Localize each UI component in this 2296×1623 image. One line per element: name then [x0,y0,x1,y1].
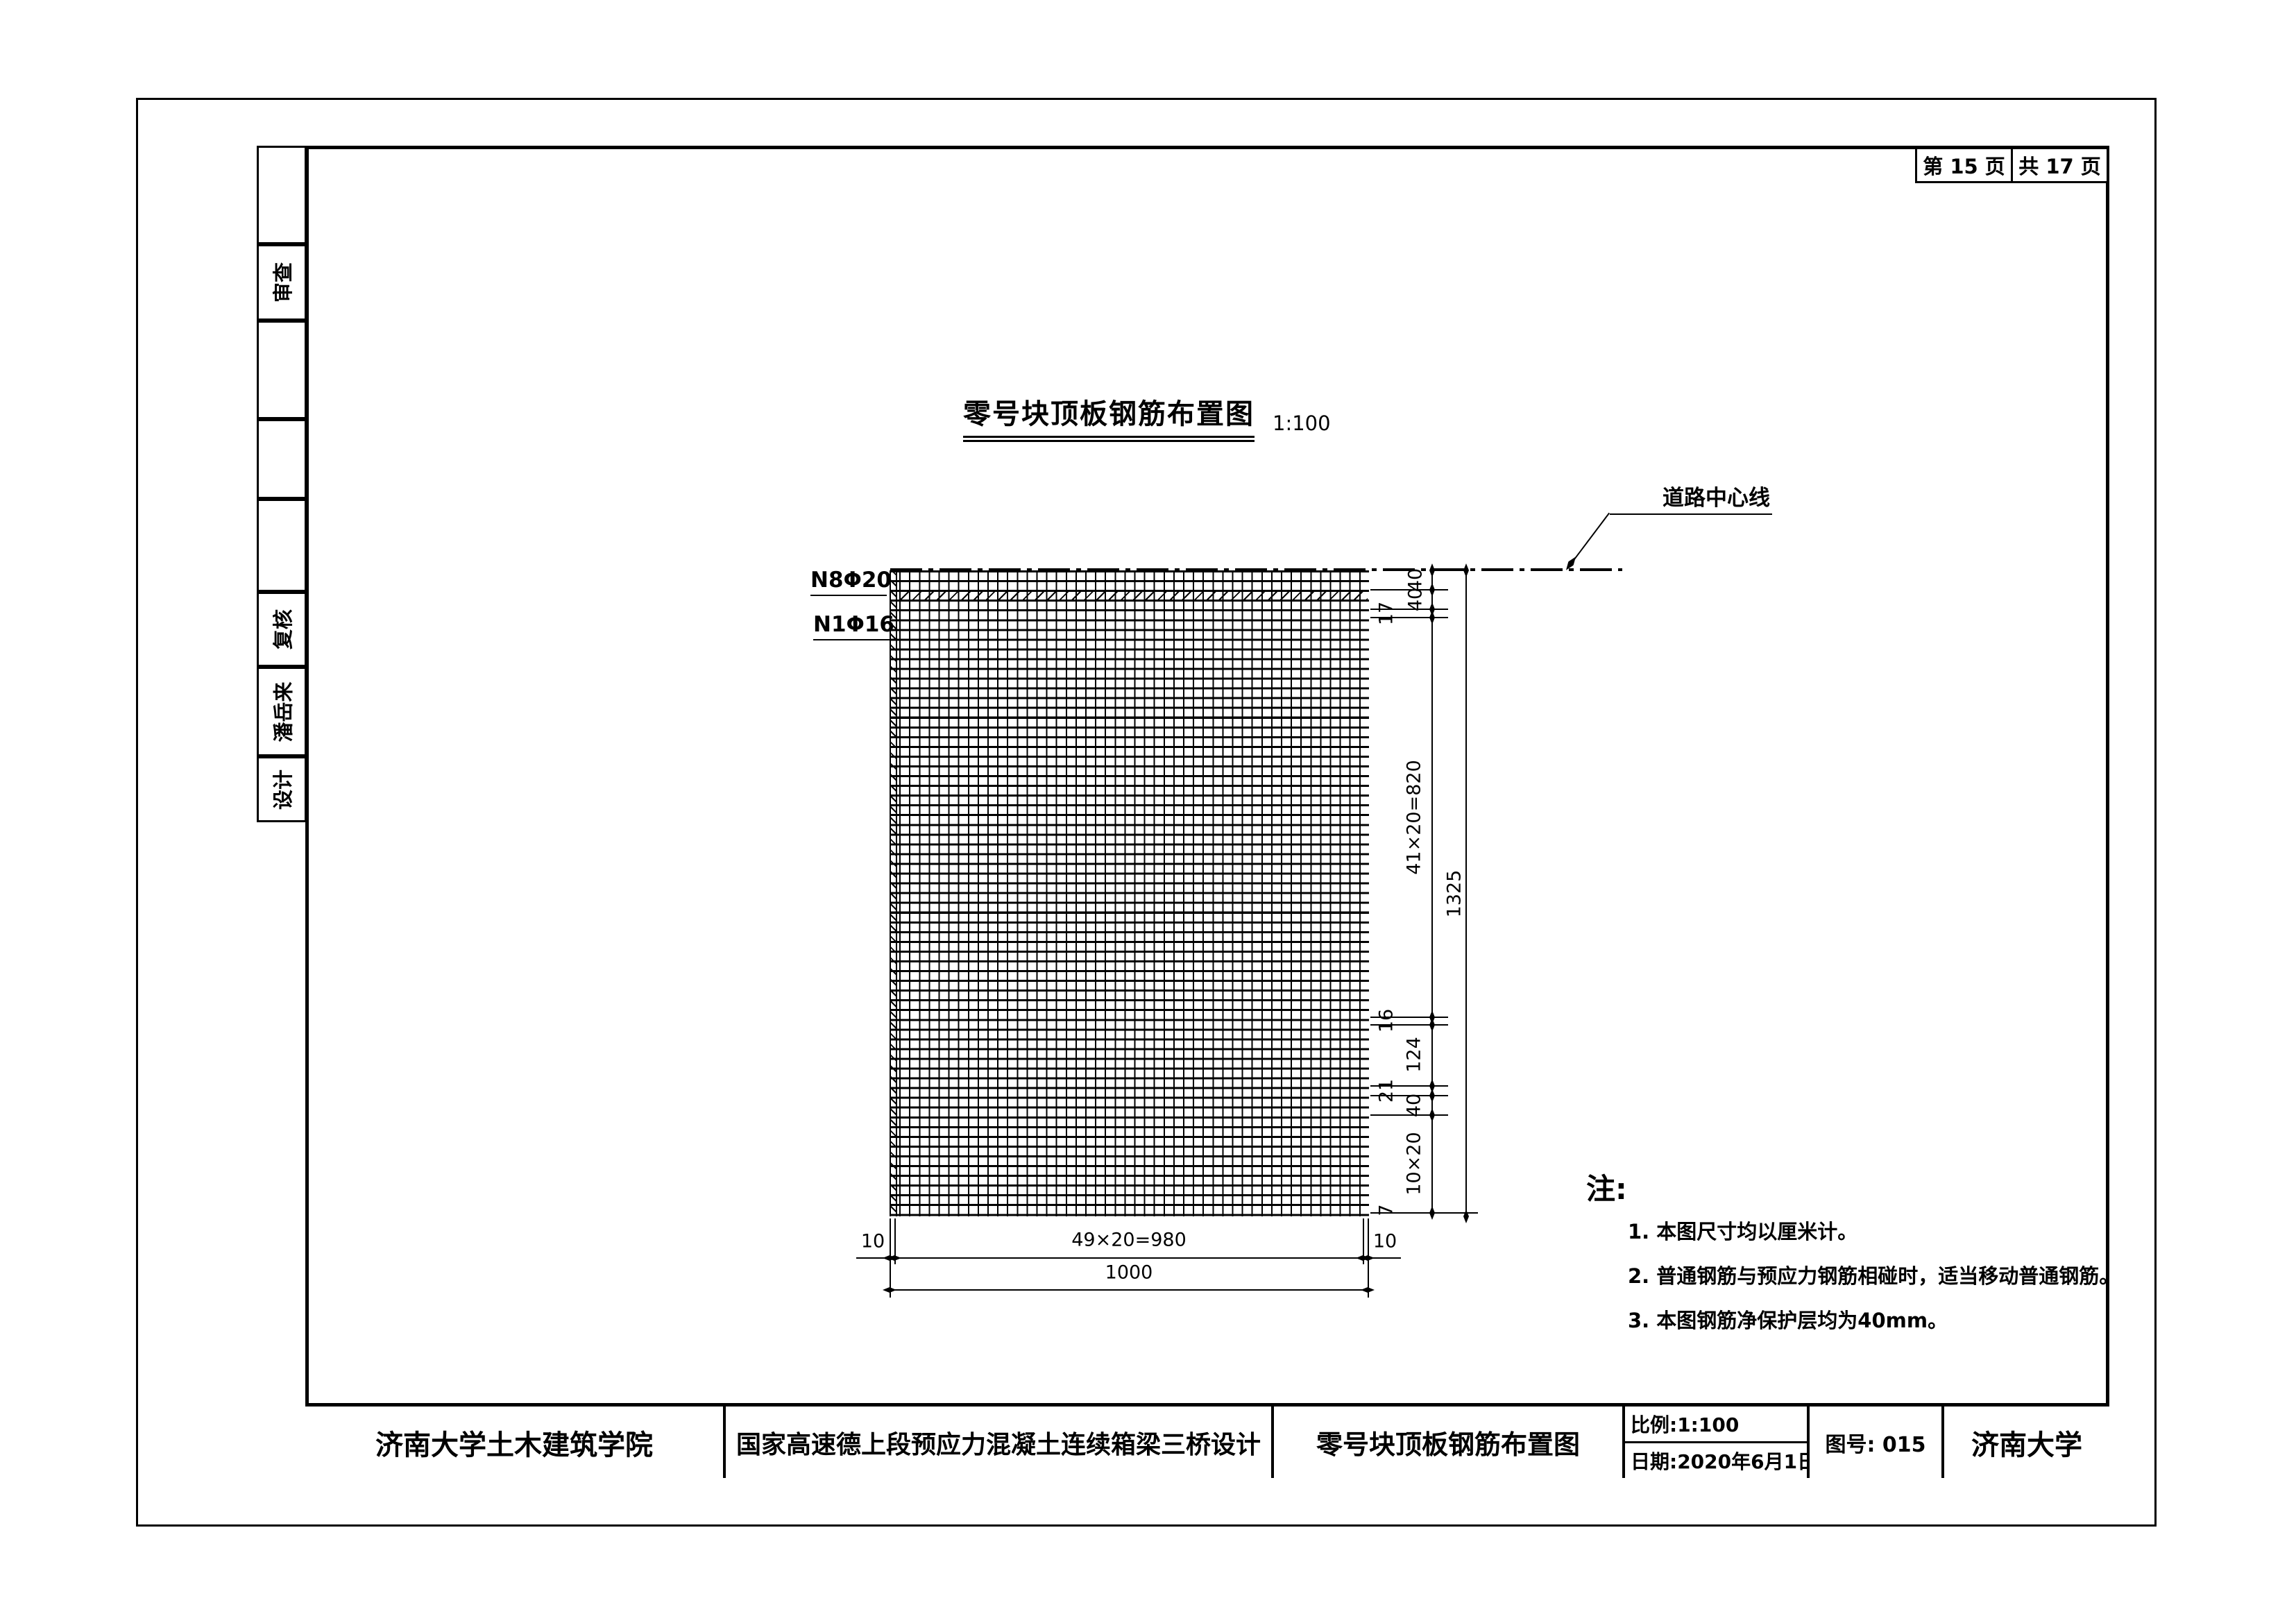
title-block-sheet-title: 零号块顶板钢筋布置图 [1271,1407,1622,1478]
sidebar-cell-designer-name: 潘岳来 [257,667,307,756]
rebar-callout-n1: N1Φ16 [813,612,890,640]
dim-label: 40 [1404,1094,1425,1117]
dimension-line [894,1257,1363,1259]
sidebar-cell-blank-1 [257,146,307,244]
mesh-left-edge [890,570,897,1216]
dim-label: 17 [1376,602,1397,625]
designer-label: 设计 [267,769,296,809]
dim-label: 7 [1376,1204,1397,1216]
page-total: 共 17 页 [2013,149,2107,181]
road-centerline-label: 道路中心线 [1663,480,1770,511]
dim-label: 16 [1376,1009,1397,1033]
dim-label: 49×20=980 [1071,1230,1187,1251]
figure-title-group: 零号块顶板钢筋布置图 1:100 [963,391,1331,442]
title-block-date: 日期:2020年6月1日 [1625,1443,1807,1478]
sidebar-cell-reviewer: 审查 [257,244,307,321]
title-block-university: 济南大学 [1941,1407,2109,1478]
page-number-box: 第 15 页 共 17 页 [1915,147,2109,183]
sidebar-cell-designer: 设计 [257,756,307,822]
dim-label: 21 [1376,1079,1397,1103]
sidebar-cell-blank-2 [257,321,307,419]
checker-label: 复核 [267,609,296,649]
title-block-scale: 比例:1:100 [1625,1407,1807,1443]
title-block-project: 国家高速德上段预应力混凝土连续箱梁三桥设计 [723,1407,1271,1478]
drawing-sheet: 审查 复核 潘岳来 设计 第 15 页 共 17 页 零号块顶板钢筋布置图 1:… [0,0,2296,1623]
reviewer-label: 审查 [267,262,296,303]
mesh-diagonal-ticks [897,592,1368,600]
title-block-number: 图号: 015 [1807,1407,1941,1478]
designer-name: 潘岳来 [267,681,296,742]
title-block-college: 济南大学土木建筑学院 [305,1407,723,1478]
figure-scale: 1:100 [1273,411,1331,442]
dim-label-overall: 1325 [1444,870,1465,918]
sidebar-cell-blank-4 [257,499,307,592]
dim-label: 10 [1373,1231,1397,1252]
note-item-1: 1. 本图尺寸均以厘米计。 [1628,1216,1857,1245]
rebar-callout-n8: N8Φ20 [810,568,887,596]
figure-title: 零号块顶板钢筋布置图 [963,391,1255,442]
dim-label-overall: 1000 [1105,1262,1153,1284]
sidebar-cell-checker: 复核 [257,592,307,667]
dim-label: 41×20=820 [1404,760,1425,875]
dimension-overall-line [890,1289,1368,1291]
title-block-scale-date: 比例:1:100 日期:2020年6月1日 [1622,1407,1807,1478]
page-number: 第 15 页 [1917,149,2013,181]
rebar-mesh-grid [890,570,1369,1216]
note-item-2: 2. 普通钢筋与预应力钢筋相碰时，适当移动普通钢筋。 [1628,1260,2119,1289]
notes-heading: 注: [1586,1166,1627,1208]
dimension-overall-line [1465,570,1467,1216]
dim-label: 10 [861,1231,885,1252]
note-item-3: 3. 本图钢筋净保护层均为40mm。 [1628,1305,1948,1334]
title-block: 济南大学土木建筑学院 国家高速德上段预应力混凝土连续箱梁三桥设计 零号块顶板钢筋… [305,1403,2109,1478]
leader-line [1610,513,1772,515]
dim-label: 40 [1405,588,1427,611]
dim-label: 10×20 [1404,1132,1425,1195]
sidebar-cell-blank-3 [257,419,307,499]
dim-label: 124 [1404,1037,1425,1073]
